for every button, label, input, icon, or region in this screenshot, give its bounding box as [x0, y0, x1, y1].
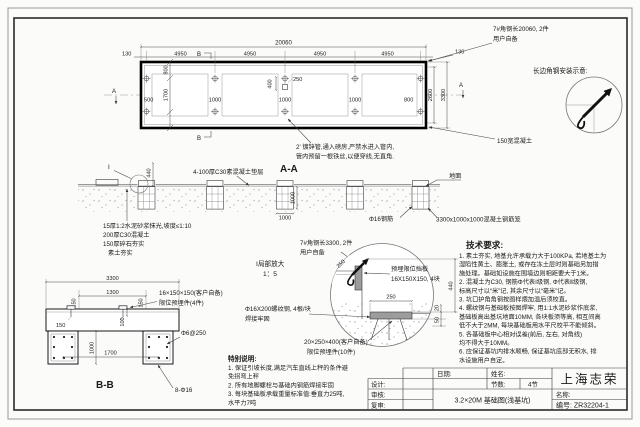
- dim-total: 20060: [275, 41, 292, 47]
- special-note-line: 免拐弯上秤: [228, 373, 259, 381]
- pit-cage: [206, 181, 224, 211]
- dim-250: 250: [386, 295, 395, 301]
- titleblock-name-label: 姓名:: [491, 369, 506, 378]
- dim-3300: 3300: [441, 89, 447, 101]
- special-note-line: 3. 每块基础板承载重量标准值:垂直力25吨,: [228, 390, 344, 398]
- special-note-line: 2. 所有地脚螺栓与基础内钢筋焊接牢固: [228, 381, 334, 389]
- titleblock-name-field: 名称:: [556, 390, 571, 399]
- stop-embed-callout-1: 20×250×400(客户自备): [304, 338, 368, 346]
- title-block: 日期: 姓名: 设计: 节数: 4节 审核: 复审: 3.2×20M 基础图(浅…: [368, 368, 627, 410]
- cushion-leader: [237, 176, 249, 186]
- pier-left: [48, 331, 78, 364]
- detail-i-enlarged: 250 250 440 20 50 Ⅰ局部放大 1：5 预埋限位挡板 16X15…: [245, 244, 458, 357]
- special-note-line: 水平力7吨: [228, 399, 256, 407]
- dim-250: 250: [293, 77, 302, 83]
- tech-line: 4. 螺纹钢与基础板按图焊牢, 用1:1水泥砂浆作底浆,: [459, 304, 597, 312]
- dim-left-margin: 500: [144, 98, 153, 104]
- dim-20: 20: [435, 305, 441, 311]
- dim-150-right: 150: [139, 298, 145, 307]
- dim-seg-3: 4950: [314, 52, 326, 58]
- titleblock-design-label: 设计:: [371, 380, 386, 389]
- section-a-marker-left: A: [112, 89, 116, 95]
- dim-800-top: 800: [164, 65, 170, 74]
- tech-line: 均不得大于10MM。: [459, 339, 513, 347]
- tech-line: 1. 素土夯实, 地基允许承载力大于100KPa, 若地基土为: [459, 252, 606, 260]
- layer-note-2: 200厚C30混凝土: [103, 231, 149, 239]
- tech-line: 5. 各基础板中心相对误差(前后, 左右, 对角线): [459, 330, 582, 338]
- angle-steel-callout-line1: 7#角钢长20060, 2件: [493, 25, 549, 33]
- tech-line: 基础板高出基坑地面10MM, 各块板须等高, 相互间高: [459, 313, 601, 321]
- dim-seg-1: 4950: [174, 52, 186, 58]
- dim-right-margin: 800: [404, 98, 413, 104]
- detail-title: Ⅰ局部放大: [256, 259, 285, 268]
- stop-plate-callout-2: 16X150X150, 4块: [391, 275, 440, 283]
- dim-100: 100: [120, 317, 126, 326]
- layer-note-3: 150厚碎石夯实: [103, 240, 144, 248]
- embed-callout-2: 限位预埋件(4件): [159, 299, 204, 307]
- detail-i-leader: [114, 171, 131, 179]
- titleblock-sections-value: 4节: [528, 381, 539, 389]
- pipe-note-line2: 管内预留一根铁丝,以便穿线,无直角.: [296, 153, 394, 161]
- rebar-callout: 8-Φ16: [175, 387, 193, 394]
- dim-seg-2: 4950: [244, 52, 256, 58]
- rebar-leader: [158, 365, 173, 388]
- slab-section: [46, 309, 179, 331]
- company-name: 上海志荣: [560, 372, 618, 387]
- section-b-arrow-bottom: [204, 131, 211, 137]
- embed-plate: [67, 306, 75, 309]
- dim-440: 440: [147, 168, 153, 177]
- base-plate: [370, 312, 412, 319]
- tech-line: 6. 应保证基坑内排水顺畅, 保证基坑底部无积水, 排: [459, 348, 597, 356]
- section-b-arrow-top: [204, 53, 211, 59]
- section-a-marker-right: A: [459, 83, 463, 89]
- embed-plate: [119, 306, 127, 309]
- stop-plate-callout-1: 预埋限位挡板: [391, 265, 428, 273]
- apron-curb: [96, 180, 118, 186]
- dim-440: 440: [449, 281, 455, 290]
- section-b-b: 3300 1300 150 150 150 100 1000 1700 16×1…: [46, 276, 223, 394]
- pit-cage: [346, 181, 364, 211]
- dim-seg-4: 4950: [381, 52, 393, 58]
- dim-400: 400: [268, 79, 274, 88]
- dim-3300: 3300: [106, 276, 118, 282]
- cage-callout: 3300x1000x1000混凝土钢筋笼: [436, 216, 521, 224]
- stirrup-callout: Φ6@250: [181, 330, 207, 337]
- anchor-bolt-callout-2: 焊接牢固: [245, 315, 270, 323]
- ground-label: 地面: [449, 172, 461, 180]
- embed-callout-1: 16×150×150(客户自备): [159, 289, 223, 297]
- concrete-edge-leader: [429, 127, 495, 139]
- plan-view: 400 250 20060 130 4950 4950 4950 4950 13…: [104, 25, 549, 161]
- detail-scale: 1：5: [263, 271, 277, 278]
- titleblock-date-label: 日期:: [437, 370, 452, 378]
- angle-steel-leader: [429, 43, 492, 61]
- dim-2600: 2600: [428, 89, 434, 101]
- dim-1300: 1300: [106, 290, 118, 296]
- drawing-sheet: 400 250 20060 130 4950 4950 4950 4950 13…: [0, 0, 640, 427]
- tech-line: 2. 混凝土为C30, 钢筋Φ代表Ⅰ级钢, Φ代表Ⅱ级钢,: [459, 278, 587, 286]
- tech-line: 低不大于2MM, 每块基础板用水平尺校平不能倾斜。: [459, 322, 600, 330]
- dim-gap-1: 1000: [209, 98, 221, 104]
- section-a-a: Ⅰ 440 4-100厚C30素混凝土垫层 A-A 1000 1000 15厚1…: [78, 163, 521, 263]
- dim-1000h: 1000: [279, 216, 291, 222]
- tech-line: 湿陷性黄土、膨胀土, 或存在冻土层时则基础另加措: [459, 261, 599, 269]
- titleblock-recheck-label: 复审:: [371, 401, 386, 410]
- rebar-callout: Φ16钢筋: [369, 215, 393, 223]
- dim-1700: 1700: [164, 89, 170, 101]
- angle-3300-callout-1: 7#角钢长3300, 2件: [300, 239, 352, 247]
- dim-gap-2: 1000: [279, 98, 291, 104]
- tech-line: 水设施用户自定。: [459, 356, 509, 364]
- dim-gap-3: 1000: [349, 98, 361, 104]
- angle-orientation-title: 长边角钢安装示意:: [533, 66, 588, 75]
- technical-requirements: 技术要求: 1. 素土夯实, 地基允许承载力大于100KPa, 若地基土为 湿陷…: [459, 239, 606, 364]
- titleblock-sections-label: 节数:: [491, 380, 506, 389]
- dim-50: 50: [435, 317, 441, 323]
- pipe-note-line1: 2′ 镀锌管,通入磅房,严禁水进入管内,: [296, 143, 394, 151]
- titleblock-check-label: 审核:: [371, 390, 386, 399]
- layer-note-4: 素土夯实: [108, 249, 133, 257]
- concrete-edge-callout: 150宽混凝土: [497, 137, 532, 145]
- tech-line: 施处理。基础如设施在围墙边则相距要大于1米。: [459, 269, 592, 277]
- stop-embed-callout-2: 限位预埋件(10件): [307, 348, 355, 356]
- layer-note-1: 15厚1:2水泥砂浆抹光,坡度≤1:10: [103, 222, 192, 230]
- detail-i-mark: Ⅰ: [108, 165, 110, 171]
- tech-title: 技术要求:: [466, 239, 503, 250]
- dim-1000: 1000: [90, 342, 96, 354]
- drawing-number: 编号: ZR32204-1: [556, 401, 609, 410]
- pier-right: [143, 331, 173, 364]
- tech-line: 标高尺寸以“米”记, 其余尺寸以“毫米”记。: [459, 287, 570, 295]
- plan-outline: [141, 62, 426, 128]
- angle-3300-callout-2: 用户自备: [300, 249, 326, 257]
- pit-cage: [412, 181, 430, 211]
- special-notes-title: 特别说明:: [228, 354, 257, 363]
- anchor-bolt-callout-1: Φ16X200螺纹钢, 4根/块: [245, 305, 311, 313]
- section-bb-title: B-B: [96, 380, 114, 391]
- foundation-drawing: 400 250 20060 130 4950 4950 4950 4950 13…: [0, 0, 640, 427]
- cushion-callout: 4-100厚C30素混凝土垫层: [193, 168, 264, 176]
- dim-1700: 1700: [104, 351, 116, 357]
- dim-1000v: 1000: [291, 192, 297, 204]
- tech-line: 3. 坑口护角角钢按图样煨加温后须校直。: [459, 296, 571, 304]
- arrow-tail-hook-icon: [578, 117, 584, 128]
- section-b-marker-top: B: [197, 52, 201, 58]
- special-notes: 特别说明: 1. 保证引坡长度,满足汽车直线上秤的条件避 免拐弯上秤 2. 所有…: [228, 354, 348, 407]
- section-b-marker-bottom: B: [197, 136, 201, 142]
- dim-150-slab: 150: [56, 323, 65, 329]
- angle-steel-callout-line2: 用户自备: [493, 35, 519, 43]
- dim-end-left: 130: [122, 52, 131, 58]
- drawing-title: 3.2×20M 基础图(浅基坑): [454, 396, 530, 405]
- angle-orientation-detail: 长边角钢安装示意:: [533, 66, 622, 133]
- section-aa-title: A-A: [280, 164, 298, 175]
- special-note-line: 1. 保证引坡长度,满足汽车直线上秤的条件避: [228, 364, 348, 372]
